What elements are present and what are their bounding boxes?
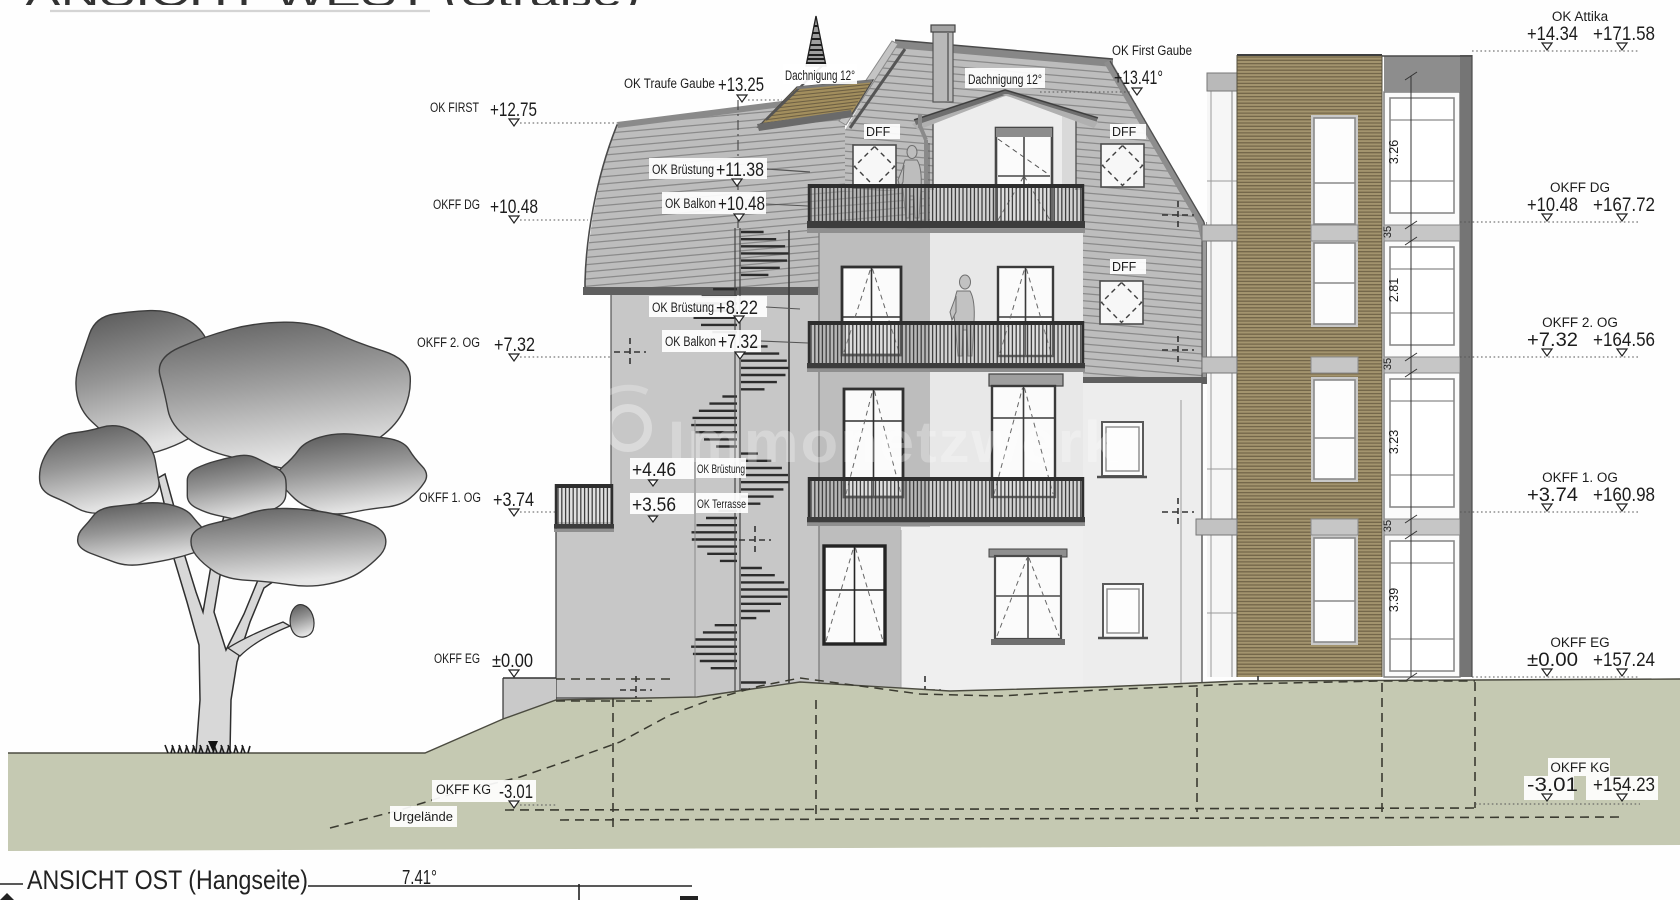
svg-text:OK Terrasse: OK Terrasse	[697, 499, 746, 511]
svg-text:+13.25: +13.25	[718, 74, 764, 96]
svg-text:3.26: 3.26	[1387, 140, 1401, 164]
svg-text:+7.32: +7.32	[1527, 329, 1578, 351]
svg-text:OKFF 2. OG: OKFF 2. OG	[417, 335, 480, 350]
svg-text:ANSICHT OST (Hangseite): ANSICHT OST (Hangseite)	[27, 865, 308, 895]
svg-text:+154.23: +154.23	[1593, 774, 1655, 796]
svg-text:OKFF DG: OKFF DG	[1550, 180, 1610, 195]
svg-text:OK Brüstung: OK Brüstung	[652, 162, 714, 177]
svg-text:+10.48: +10.48	[490, 196, 538, 218]
svg-text:2.81: 2.81	[1387, 278, 1401, 302]
svg-text:OK Balkon: OK Balkon	[665, 196, 716, 211]
svg-text:+3.74: +3.74	[1527, 484, 1578, 506]
svg-text:OKFF EG: OKFF EG	[434, 651, 480, 666]
svg-text:OKFF 2. OG: OKFF 2. OG	[1542, 315, 1618, 330]
svg-text:OK Brüstung: OK Brüstung	[652, 300, 714, 315]
svg-text:7.41°: 7.41°	[402, 867, 437, 889]
svg-text:±0.00: ±0.00	[492, 650, 533, 672]
svg-text:OK Brüstung: OK Brüstung	[697, 464, 745, 476]
svg-text:+7.32: +7.32	[494, 334, 535, 356]
svg-text:+12.75: +12.75	[490, 99, 537, 121]
svg-text:+157.24: +157.24	[1593, 649, 1655, 671]
svg-text:3.23: 3.23	[1387, 430, 1401, 454]
svg-text:+13.41°: +13.41°	[1114, 67, 1163, 89]
svg-text:OK FIRST: OK FIRST	[430, 100, 479, 115]
svg-text:OKFF 1. OG: OKFF 1. OG	[1542, 470, 1618, 485]
svg-text:±0.00: ±0.00	[1527, 649, 1578, 671]
svg-text:35: 35	[1382, 226, 1394, 238]
svg-text:OK Traufe Gaube: OK Traufe Gaube	[624, 76, 715, 91]
svg-text:+160.98: +160.98	[1593, 484, 1655, 506]
svg-text:-3.01: -3.01	[1527, 774, 1578, 796]
svg-text:3.39: 3.39	[1387, 588, 1401, 612]
svg-text:OK First Gaube: OK First Gaube	[1112, 43, 1192, 58]
svg-text:+10.48: +10.48	[1527, 194, 1578, 216]
svg-text:+171.58: +171.58	[1593, 23, 1655, 45]
svg-text:+11.38: +11.38	[716, 160, 764, 181]
svg-text:35: 35	[1382, 358, 1394, 370]
svg-text:-3.01: -3.01	[499, 781, 533, 803]
svg-text:DFF: DFF	[1112, 125, 1137, 139]
svg-text:OKFF 1. OG: OKFF 1. OG	[419, 490, 481, 505]
svg-text:Dachnigung 12°: Dachnigung 12°	[968, 72, 1042, 87]
svg-text:DFF: DFF	[866, 125, 891, 139]
svg-text:+3.56: +3.56	[632, 495, 676, 516]
svg-text:Urgelände: Urgelände	[393, 809, 453, 824]
svg-text:OKFF EG: OKFF EG	[1550, 635, 1609, 650]
svg-text:OK Balkon: OK Balkon	[665, 334, 716, 349]
svg-text:OKFF KG: OKFF KG	[1550, 760, 1609, 775]
svg-text:Dachnigung 12°: Dachnigung 12°	[785, 68, 855, 83]
svg-text:35: 35	[1382, 520, 1394, 532]
svg-text:+164.56: +164.56	[1593, 329, 1655, 351]
svg-text:+7.32: +7.32	[718, 332, 758, 353]
svg-text:DFF: DFF	[1112, 260, 1137, 274]
svg-text:+3.74: +3.74	[493, 489, 534, 511]
svg-text:OKFF KG: OKFF KG	[436, 782, 491, 797]
svg-text:+14.34: +14.34	[1527, 23, 1578, 45]
svg-text:+4.46: +4.46	[632, 460, 676, 481]
svg-text:OK Attika: OK Attika	[1552, 9, 1609, 24]
svg-text:+167.72: +167.72	[1593, 194, 1655, 216]
svg-text:+10.48: +10.48	[718, 194, 765, 215]
svg-text:OKFF DG: OKFF DG	[433, 197, 480, 212]
